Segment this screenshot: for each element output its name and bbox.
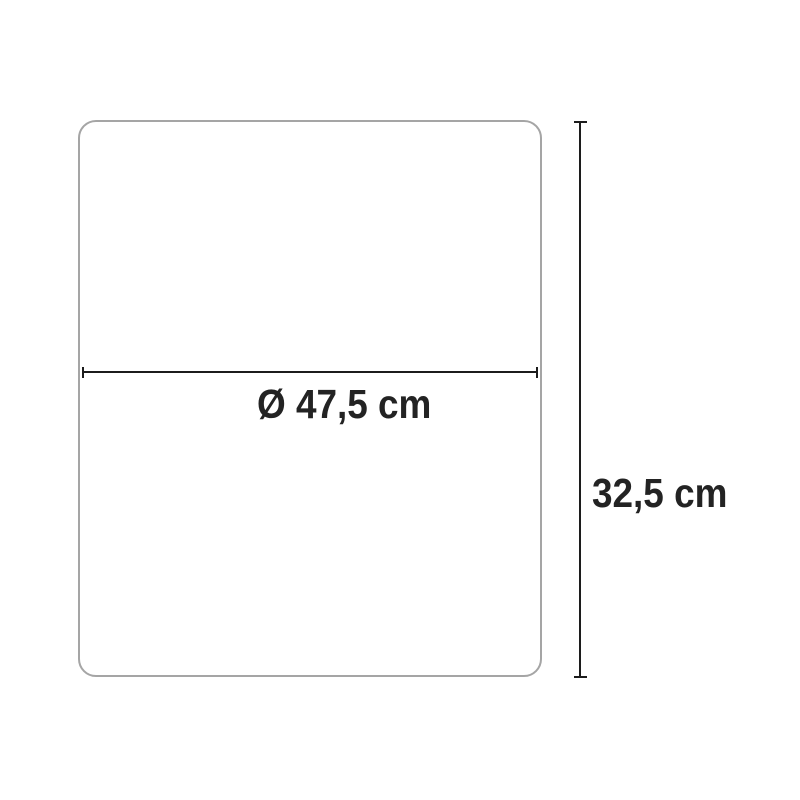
width-dimension-label: Ø 47,5 cm bbox=[257, 384, 419, 425]
width-dimension-line bbox=[83, 371, 537, 373]
width-dimension-left-tick bbox=[82, 367, 84, 378]
height-dimension-top-tick bbox=[574, 121, 587, 123]
dimension-diagram: Ø 47,5 cm 32,5 cm bbox=[0, 0, 800, 800]
height-dimension-label: 32,5 cm bbox=[592, 473, 727, 514]
width-dimension-right-tick bbox=[536, 367, 538, 378]
height-dimension-bottom-tick bbox=[574, 676, 587, 678]
height-dimension-line bbox=[579, 122, 581, 677]
